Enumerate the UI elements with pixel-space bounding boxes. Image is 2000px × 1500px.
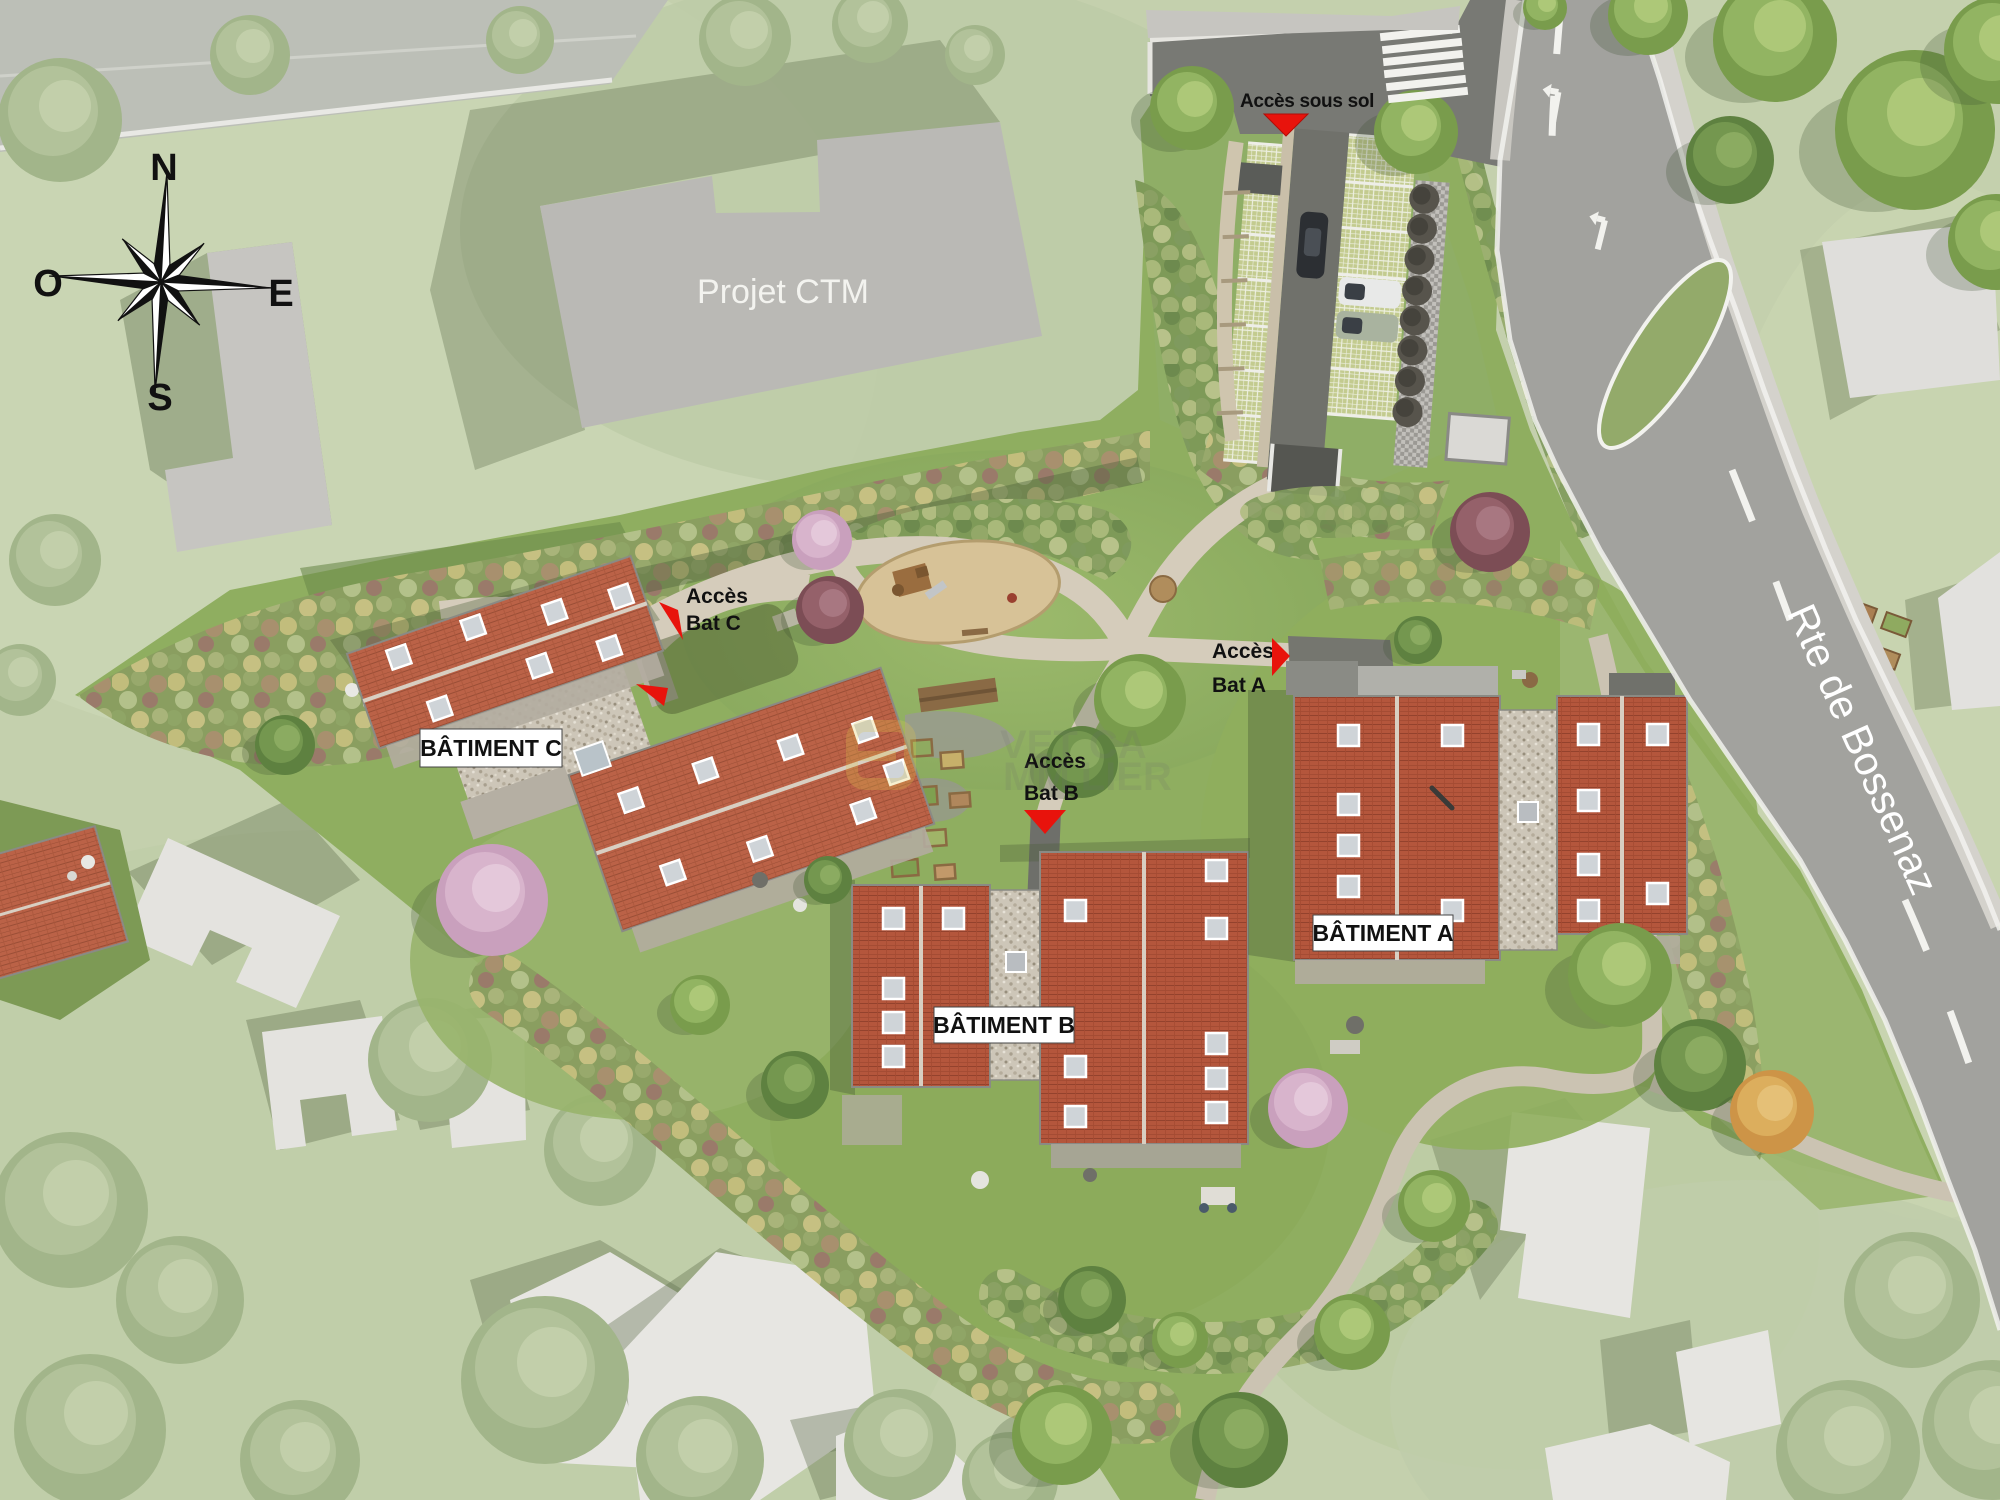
svg-text:BÂTIMENT C: BÂTIMENT C (420, 734, 562, 761)
svg-text:N: N (150, 147, 177, 189)
svg-text:MM LIER: MM LIER (1003, 755, 1172, 799)
svg-text:Accès sous sol: Accès sous sol (1240, 91, 1374, 112)
svg-text:O: O (33, 263, 63, 305)
svg-text:Accès: Accès (686, 585, 748, 608)
svg-text:Accès: Accès (1212, 640, 1274, 663)
svg-text:Bat A: Bat A (1212, 674, 1266, 697)
svg-text:S: S (147, 377, 172, 419)
svg-text:Bat C: Bat C (686, 612, 741, 635)
svg-text:E: E (268, 273, 293, 315)
svg-text:Projet CTM: Projet CTM (697, 273, 869, 311)
svg-text:BÂTIMENT A: BÂTIMENT A (1313, 919, 1454, 946)
svg-text:BÂTIMENT B: BÂTIMENT B (933, 1011, 1075, 1038)
